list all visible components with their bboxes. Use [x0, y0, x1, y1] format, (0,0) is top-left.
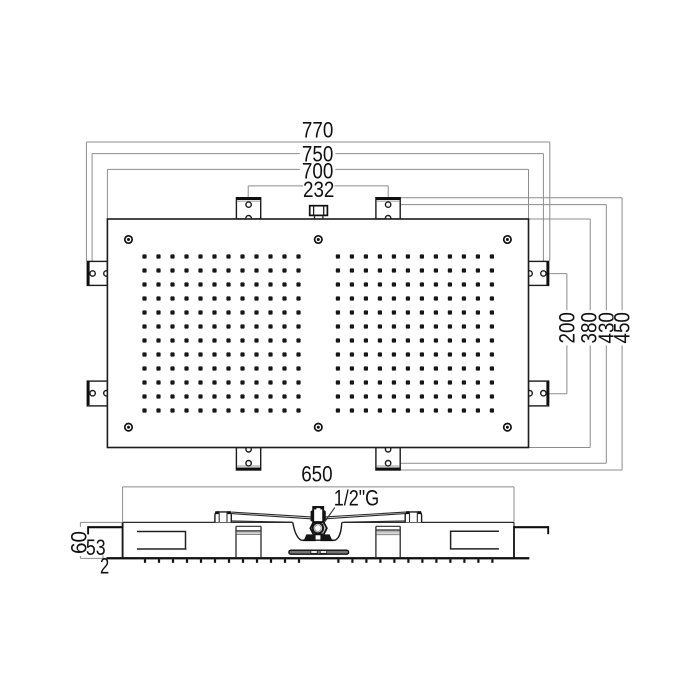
svg-text:2: 2: [100, 554, 109, 579]
svg-text:1/2"G: 1/2"G: [334, 485, 380, 510]
svg-text:770: 770: [302, 118, 333, 143]
svg-text:650: 650: [301, 462, 332, 487]
svg-text:232: 232: [303, 177, 334, 202]
svg-text:450: 450: [610, 312, 635, 343]
